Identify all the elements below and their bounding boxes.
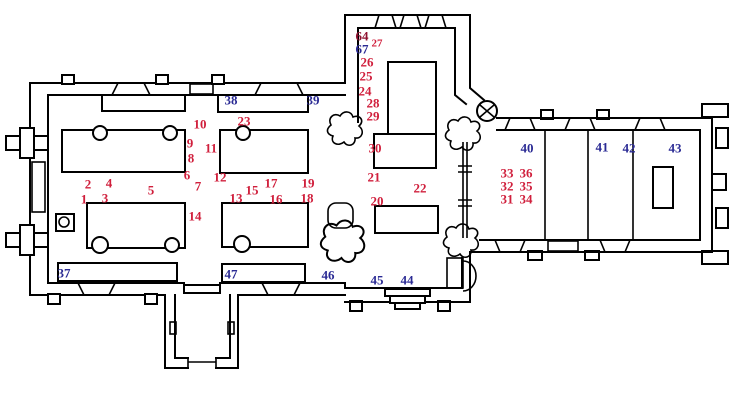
church-floor-plan: 1234567891011121314151617181920212223242… [0,0,740,410]
marker-33: 33 [501,167,514,180]
column-base [165,238,179,252]
south-door-steps [385,289,430,309]
marker-19: 19 [302,177,315,190]
marker-17: 17 [265,177,278,190]
marker-3: 3 [102,192,109,205]
marker-8: 8 [188,152,195,165]
column-base [163,126,177,140]
marker-7: 7 [195,180,202,193]
marker-29: 29 [367,110,380,123]
marker-12: 12 [214,171,227,184]
marker-46: 46 [322,269,335,282]
north-wall-bench-west [102,95,185,111]
marker-22: 22 [414,182,427,195]
marker-45: 45 [371,274,384,287]
tomb-chest [447,258,463,288]
marker-31: 31 [501,193,514,206]
marker-1: 1 [81,193,88,206]
marker-14: 14 [189,210,202,223]
marker-15: 15 [246,184,259,197]
altar [653,167,673,208]
marker-21: 21 [368,171,381,184]
spiral-stair [477,101,497,121]
marker-27: 27 [372,39,383,50]
marker-13: 13 [230,192,243,205]
marker-30: 30 [369,142,382,155]
marker-41: 41 [596,141,609,154]
marker-36: 36 [520,167,533,180]
column-base [234,236,250,252]
marker-18: 18 [301,192,314,205]
marker-25: 25 [360,70,373,83]
organ-block [388,62,436,134]
marker-39: 39 [307,94,320,107]
marker-40: 40 [521,142,534,155]
pier-southwest [321,220,364,262]
marker-26: 26 [361,56,374,69]
font [56,214,74,231]
block-30 [374,134,436,168]
marker-6: 6 [184,169,191,182]
marker-2: 2 [85,178,92,191]
marker-44: 44 [401,274,414,287]
marker-11: 11 [205,142,217,155]
marker-9: 9 [187,137,194,150]
column-base [92,237,108,253]
column-base [93,126,107,140]
south-wall-bench-37 [58,263,177,281]
marker-37: 37 [58,267,71,280]
marker-67: 67 [356,43,369,56]
marker-42: 42 [623,142,636,155]
marker-35: 35 [520,180,533,193]
marker-23: 23 [238,115,251,128]
chancel-bay-lines [545,130,633,240]
marker-10: 10 [194,118,207,131]
marker-5: 5 [148,184,155,197]
furniture [56,62,438,282]
pier-northwest [327,112,362,145]
block-20 [375,206,438,233]
marker-34: 34 [520,193,533,206]
marker-38: 38 [225,94,238,107]
porch-threshold [184,285,220,293]
marker-32: 32 [501,180,514,193]
marker-43: 43 [669,142,682,155]
marker-4: 4 [106,177,113,190]
marker-16: 16 [270,193,283,206]
marker-47: 47 [225,268,238,281]
pews-northeast [220,130,308,173]
marker-20: 20 [371,195,384,208]
south-porch [165,285,238,368]
